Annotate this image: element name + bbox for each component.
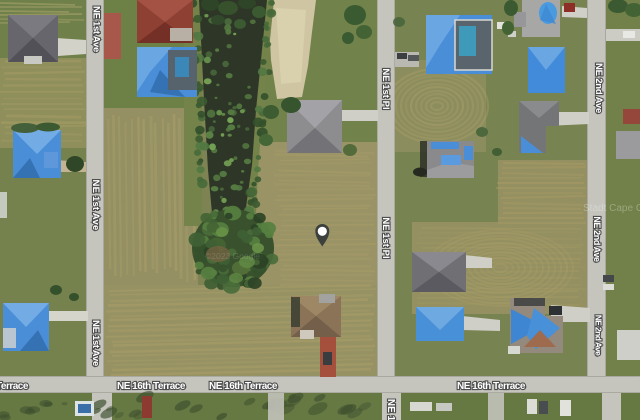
svg-text:NE 1st Pl: NE 1st Pl: [380, 68, 391, 109]
svg-text:NE 1st Pl: NE 1st Pl: [380, 217, 391, 258]
svg-text:NE 16th Terrace: NE 16th Terrace: [209, 381, 278, 392]
svg-text:NE 16th Terrace: NE 16th Terrace: [117, 381, 186, 392]
svg-text:NE 1st Ave: NE 1st Ave: [90, 180, 101, 231]
svg-text:NE 1st Ave: NE 1st Ave: [91, 6, 102, 52]
svg-text:NE 16th Terrace: NE 16th Terrace: [0, 381, 29, 392]
svg-text:NE 2nd Ave: NE 2nd Ave: [594, 315, 604, 356]
svg-text:NE 1: NE 1: [385, 399, 396, 420]
svg-text:NE 1st Ave: NE 1st Ave: [90, 320, 101, 366]
svg-text:NE 2nd Ave: NE 2nd Ave: [592, 216, 602, 262]
svg-text:©2023 Google: ©2023 Google: [205, 251, 260, 261]
svg-text:NE 16th Terrace: NE 16th Terrace: [457, 381, 526, 392]
svg-text:Stadt Cape C: Stadt Cape C: [583, 203, 640, 214]
svg-text:NE 2nd Ave: NE 2nd Ave: [593, 63, 604, 113]
